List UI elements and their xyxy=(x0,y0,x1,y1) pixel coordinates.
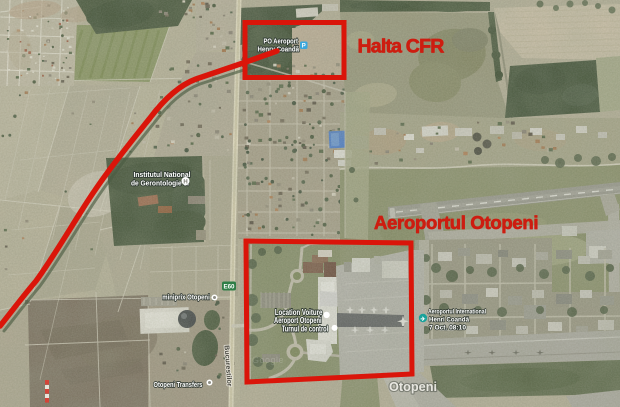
svg-text:✈: ✈ xyxy=(420,316,425,323)
svg-text:Aeroportul Otopeni: Aeroportul Otopeni xyxy=(374,212,538,233)
svg-text:Turnul de control: Turnul de control xyxy=(282,325,329,334)
svg-text:Google: Google xyxy=(252,355,284,365)
svg-text:7 Oct. 08:10: 7 Oct. 08:10 xyxy=(429,325,466,332)
svg-text:miniprix Otopeni: miniprix Otopeni xyxy=(162,293,210,302)
svg-text:Halta CFR: Halta CFR xyxy=(358,36,445,58)
svg-text:Otopeni: Otopeni xyxy=(389,380,437,394)
svg-text:P: P xyxy=(302,43,306,49)
svg-text:H: H xyxy=(183,180,187,186)
svg-text:Aeroportul International: Aeroportul International xyxy=(428,309,486,316)
svg-text:Henri Coandă: Henri Coandă xyxy=(429,317,469,324)
svg-text:Otopeni Transfers: Otopeni Transfers xyxy=(154,380,203,389)
svg-text:E60: E60 xyxy=(223,283,235,290)
svg-text:de Gerontologie si: de Gerontologie si xyxy=(131,179,189,188)
